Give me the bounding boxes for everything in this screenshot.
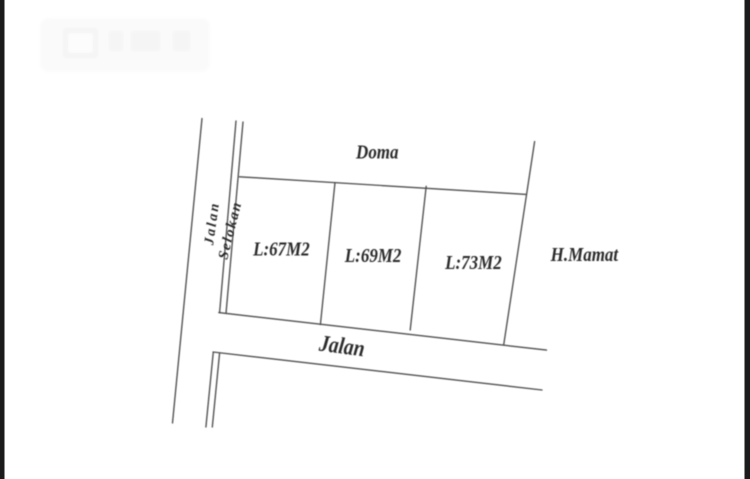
svg-text:L:67M2: L:67M2 xyxy=(252,238,310,261)
svg-text:H.Mamat: H.Mamat xyxy=(550,244,619,267)
svg-text:L:69M2: L:69M2 xyxy=(344,245,402,268)
svg-text:Doma: Doma xyxy=(355,141,398,164)
svg-text:L:73M2: L:73M2 xyxy=(444,252,502,275)
